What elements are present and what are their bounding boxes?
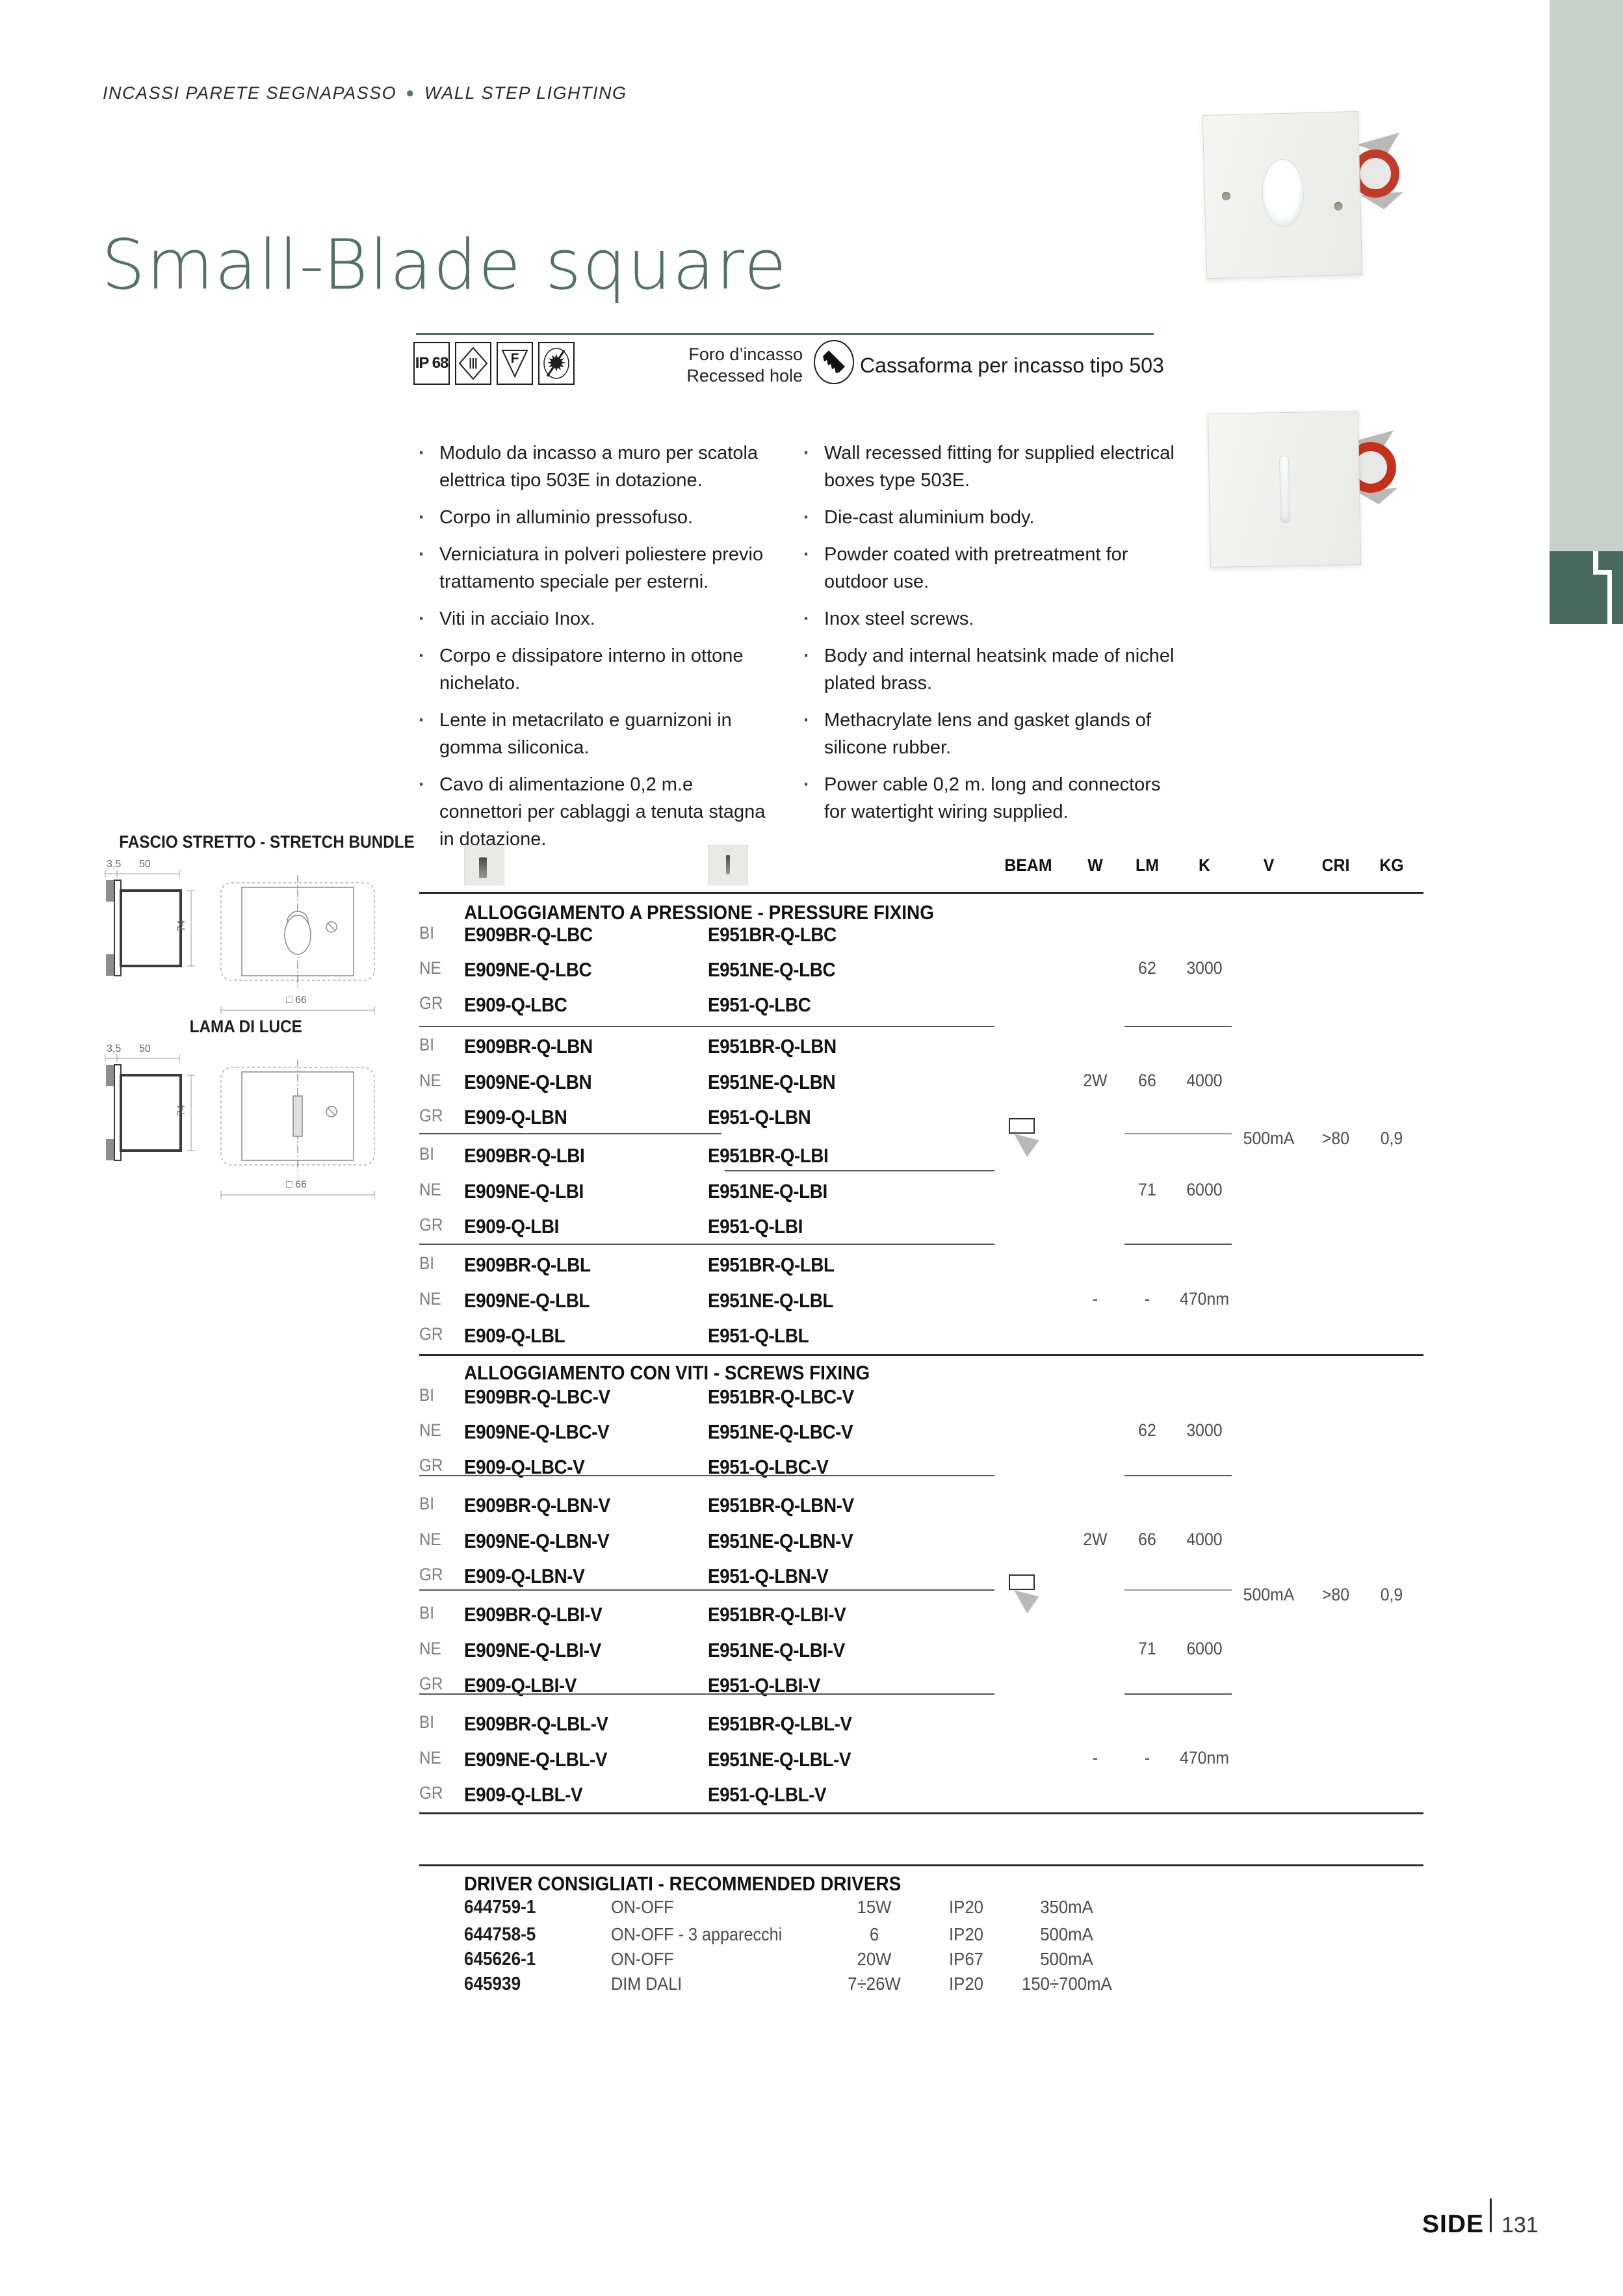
driver-watt: 7÷26W (842, 1974, 906, 1994)
driver-code: 644759-1 (464, 1897, 536, 1918)
feature-item: Die-cast aluminium body. (801, 504, 1178, 531)
finish-label: GR (419, 1106, 443, 1126)
separator-dot-icon: ● (396, 85, 424, 101)
product-code: E951-Q-LBN (708, 1106, 811, 1129)
table-row: BIE909BR-Q-LBIE951BR-Q-LBI (0, 1144, 1623, 1168)
table-row: NEE909NE-Q-LBIE951NE-Q-LBI716000 (0, 1180, 1623, 1203)
driver-type: DIM DALI (611, 1974, 682, 1994)
product-thumb-oval (464, 845, 504, 885)
table-row: BIE909BR-Q-LBCE951BR-Q-LBC (0, 923, 1623, 946)
product-code: E909BR-Q-LBI (464, 1144, 584, 1168)
product-code: E909BR-Q-LBL (464, 1253, 591, 1277)
sunburst-icon: ✹ (541, 345, 572, 382)
step-logo-icon (1550, 551, 1623, 624)
product-code: E951NE-Q-LBL (708, 1289, 833, 1312)
driver-code: 644758-5 (464, 1924, 536, 1946)
feature-item: Corpo e dissipatore interno in ottone ni… (416, 642, 770, 697)
f-symbol-badge: F (497, 342, 533, 385)
kelvin-value: 3000 (1171, 1420, 1237, 1441)
finish-label: NE (419, 1180, 441, 1200)
column-header-v: V (1236, 855, 1301, 876)
product-photo-oval (1198, 109, 1412, 291)
section-title-pressure-fixing: ALLOGGIAMENTO A PRESSIONE - PRESSURE FIX… (464, 901, 986, 924)
product-code: E951BR-Q-LBI (708, 1144, 828, 1168)
finish-label: NE (419, 1071, 441, 1091)
no-direct-sunlight-badge: ✹ (538, 342, 575, 385)
product-code: E909NE-Q-LBI (464, 1180, 584, 1203)
table-row: GRE909-Q-LBL-VE951-Q-LBL-V (0, 1783, 1623, 1807)
kelvin-value: 470nm (1171, 1748, 1237, 1768)
formwork-label: Cassaforma per incasso tipo 503 (860, 354, 1164, 378)
driver-type: ON-OFF - 3 apparecchi (611, 1924, 782, 1945)
feature-item: Methacrylate lens and gasket glands of s… (801, 707, 1178, 761)
driver-watt: 15W (842, 1897, 906, 1918)
table-row: BIE909BR-Q-LBLE951BR-Q-LBL (0, 1253, 1623, 1277)
table-row: NEE909NE-Q-LBNE951NE-Q-LBN2W664000 (0, 1071, 1623, 1094)
table-row: NEE909NE-Q-LBN-VE951NE-Q-LBN-V2W664000 (0, 1530, 1623, 1553)
finish-label: NE (419, 1748, 441, 1768)
driver-current: 150÷700mA (1022, 1974, 1111, 1994)
product-code: E909-Q-LBI (464, 1215, 559, 1238)
lumen-value: 71 (1121, 1639, 1173, 1659)
finish-label: GR (419, 1565, 443, 1585)
group-divider (1124, 1244, 1232, 1245)
product-code: E951NE-Q-LBI (708, 1180, 827, 1203)
category-en: WALL STEP LIGHTING (424, 83, 627, 103)
slot-lens (1279, 456, 1290, 523)
recessed-hole-it: Foro d’incasso (663, 344, 803, 365)
product-code: E951NE-Q-LBN-V (708, 1530, 853, 1553)
product-code: E951-Q-LBL (708, 1324, 809, 1348)
finish-label: BI (419, 1712, 434, 1732)
category-header: INCASSI PARETE SEGNAPASSO●WALL STEP LIGH… (103, 83, 627, 103)
finish-label: NE (419, 958, 441, 978)
product-code: E951BR-Q-LBN-V (708, 1494, 854, 1517)
finish-label: GR (419, 1674, 443, 1694)
product-code: E951BR-Q-LBL-V (708, 1712, 852, 1736)
finish-label: BI (419, 1603, 434, 1623)
kelvin-value: 3000 (1171, 958, 1237, 978)
column-header-k: K (1171, 855, 1237, 876)
footer-divider (1490, 2198, 1492, 2232)
group-divider (419, 1693, 994, 1695)
table-row: BIE909BR-Q-LBC-VE951BR-Q-LBC-V (0, 1385, 1623, 1409)
table-row: NEE909NE-Q-LBL-VE951NE-Q-LBL-V--470nm (0, 1748, 1623, 1771)
feature-item: Corpo in alluminio pressofuso. (416, 504, 770, 531)
finish-label: GR (419, 1215, 443, 1235)
finish-label: BI (419, 1385, 434, 1405)
table-row: GRE909-Q-LBNE951-Q-LBN (0, 1106, 1623, 1129)
side-color-band (1550, 0, 1623, 551)
section-title-screws-fixing: ALLOGGIAMENTO CON VITI - SCREWS FIXING (464, 1361, 915, 1385)
weight-value: 0,9 (1366, 1585, 1417, 1605)
finish-label: NE (419, 1639, 441, 1659)
finish-label: BI (419, 1494, 434, 1514)
features-english: Wall recessed fitting for supplied elect… (801, 439, 1178, 835)
product-code: E909NE-Q-LBL (464, 1289, 590, 1312)
column-header-cri: CRI (1310, 855, 1361, 876)
fixture-plate (1202, 111, 1363, 279)
table-row: BIE909BR-Q-LBL-VE951BR-Q-LBL-V (0, 1712, 1623, 1736)
product-code: E909BR-Q-LBC-V (464, 1385, 610, 1409)
lumen-value: - (1121, 1748, 1173, 1768)
product-code: E951NE-Q-LBN (708, 1071, 835, 1094)
finish-label: NE (419, 1420, 441, 1441)
feature-item: Lente in metacrilato e guarnizoni in gom… (416, 707, 770, 761)
watt-value: - (1069, 1289, 1123, 1309)
table-row: NEE909NE-Q-LBCE951NE-Q-LBC623000 (0, 958, 1623, 982)
driver-watt: 6 (842, 1924, 906, 1945)
lumen-value: 62 (1121, 958, 1173, 978)
drawing-title-light-blade: LAMA DI LUCE (103, 1017, 389, 1037)
cri-value: >80 (1310, 1585, 1361, 1605)
formwork-icon (812, 339, 855, 388)
footer-brand: SIDE (1422, 2210, 1484, 2239)
drivers-top-rule (419, 1864, 1423, 1866)
page-number: 131 (1501, 2213, 1539, 2238)
class-3-diamond-icon: Ⅲ (458, 345, 489, 382)
product-code: E909-Q-LBN (464, 1106, 567, 1129)
group-divider (419, 1026, 994, 1027)
finish-label: BI (419, 1253, 434, 1273)
product-code: E951-Q-LBL-V (708, 1783, 826, 1807)
finish-label: GR (419, 993, 443, 1013)
product-code: E909BR-Q-LBN (464, 1035, 593, 1058)
f-triangle-icon: F (499, 345, 530, 382)
table-row: NEE909NE-Q-LBC-VE951NE-Q-LBC-V623000 (0, 1420, 1623, 1444)
product-code: E909-Q-LBC (464, 993, 567, 1017)
product-photo-slot (1201, 404, 1409, 577)
lumen-value: 66 (1121, 1530, 1173, 1550)
table-row: NEE909NE-Q-LBI-VE951NE-Q-LBI-V716000 (0, 1639, 1623, 1662)
driver-type: ON-OFF (611, 1949, 674, 1970)
catalog-page: INCASSI PARETE SEGNAPASSO●WALL STEP LIGH… (0, 0, 1623, 2296)
feature-item: Verniciatura in polveri poliestere previ… (416, 541, 770, 595)
driver-row: 644759-1ON-OFF15WIP20350mA (0, 1897, 1623, 1920)
group-divider (419, 1244, 994, 1245)
product-code: E951-Q-LBC (708, 993, 811, 1017)
section-divider (419, 1354, 1423, 1356)
drawing-title-stretch-bundle: FASCIO STRETTO - STRETCH BUNDLE (103, 832, 389, 852)
driver-row: 644758-5ON-OFF - 3 apparecchi6IP20500mA (0, 1924, 1623, 1948)
beam-icon (1009, 1118, 1035, 1134)
product-code: E909NE-Q-LBI-V (464, 1639, 601, 1662)
table-row: NEE909NE-Q-LBLE951NE-Q-LBL--470nm (0, 1289, 1623, 1312)
driver-type: ON-OFF (611, 1897, 674, 1918)
kelvin-value: 4000 (1171, 1071, 1237, 1091)
watt-value: 2W (1069, 1071, 1123, 1091)
product-code: E951BR-Q-LBN (708, 1035, 837, 1058)
feature-item: Wall recessed fitting for supplied elect… (801, 439, 1178, 494)
svg-text:F: F (511, 351, 519, 366)
category-it: INCASSI PARETE SEGNAPASSO (103, 83, 396, 103)
table-bottom-rule (419, 1812, 1423, 1814)
features-italian: Modulo da incasso a muro per scatola ele… (416, 439, 770, 863)
driver-code: 645939 (464, 1974, 521, 1995)
driver-current: 500mA (1022, 1949, 1111, 1970)
group-divider (1124, 1693, 1232, 1695)
recessed-hole-labels: Foro d’incasso Recessed hole (663, 344, 803, 387)
feature-item: Inox steel screws. (801, 605, 1178, 633)
driver-current: 350mA (1022, 1897, 1111, 1918)
column-header-kg: KG (1366, 855, 1417, 876)
watt-value: - (1069, 1748, 1123, 1768)
product-code: E909-Q-LBL-V (464, 1783, 582, 1807)
recessed-hole-en: Recessed hole (663, 365, 803, 387)
finish-label: BI (419, 923, 434, 943)
feature-item: Cavo di alimentazione 0,2 m.e connettori… (416, 771, 770, 853)
driver-watt: 20W (842, 1949, 906, 1970)
driver-row: 645939DIM DALI7÷26WIP20150÷700mA (0, 1974, 1623, 1997)
product-code: E951NE-Q-LBC-V (708, 1420, 853, 1444)
finish-label: NE (419, 1530, 441, 1550)
table-row: BIE909BR-Q-LBI-VE951BR-Q-LBI-V (0, 1603, 1623, 1626)
finish-label: NE (419, 1289, 441, 1309)
svg-text:3,5: 3,5 (107, 859, 121, 870)
driver-current: 500mA (1022, 1924, 1111, 1945)
column-header-w: W (1069, 855, 1123, 876)
product-code: E909BR-Q-LBC (464, 923, 593, 946)
driver-ip: IP20 (949, 1924, 983, 1945)
brand-logo (1550, 551, 1623, 624)
product-code: E909NE-Q-LBN-V (464, 1530, 609, 1553)
feature-item: Viti in acciaio Inox. (416, 605, 770, 633)
finish-label: GR (419, 1455, 443, 1476)
product-code: E951NE-Q-LBL-V (708, 1748, 851, 1771)
table-row: GRE909-Q-LBLE951-Q-LBL (0, 1324, 1623, 1348)
table-row: GRE909-Q-LBCE951-Q-LBC (0, 993, 1623, 1017)
finish-label: GR (419, 1783, 443, 1803)
table-header-rule (419, 892, 1423, 894)
product-code: E909NE-Q-LBC (464, 958, 591, 982)
fixture-plate (1208, 411, 1361, 567)
product-code: E909NE-Q-LBC-V (464, 1420, 609, 1444)
page-title: Small-Blade square (101, 225, 788, 305)
group-divider (419, 1475, 994, 1476)
feature-item: Powder coated with pretreatment for outd… (801, 541, 1178, 595)
svg-text:Ⅲ: Ⅲ (468, 356, 478, 372)
ip-rating-badge: IP 68 (413, 342, 450, 385)
lumen-value: 66 (1121, 1071, 1173, 1091)
kelvin-value: 4000 (1171, 1530, 1237, 1550)
driver-ip: IP20 (949, 1897, 983, 1918)
product-code: E909-Q-LBL (464, 1324, 565, 1348)
group-divider (1124, 1026, 1232, 1027)
screw-icon (1222, 192, 1230, 200)
beam-icon (1009, 1574, 1035, 1590)
group-divider (725, 1170, 994, 1171)
finish-label: BI (419, 1144, 434, 1164)
product-code: E909NE-Q-LBL-V (464, 1748, 607, 1771)
finish-label: BI (419, 1035, 434, 1055)
svg-text:50: 50 (139, 859, 151, 870)
product-thumb-slot (708, 845, 748, 885)
driver-code: 645626-1 (464, 1949, 536, 1970)
table-row: GRE909-Q-LBIE951-Q-LBI (0, 1215, 1623, 1238)
ip-rating-label: IP 68 (415, 354, 448, 372)
lumen-value: 71 (1121, 1180, 1173, 1200)
lumen-value: 62 (1121, 1420, 1173, 1441)
lumen-value: - (1121, 1289, 1173, 1309)
driver-ip: IP20 (949, 1974, 983, 1994)
product-code: E909BR-Q-LBI-V (464, 1603, 602, 1626)
product-code: E951NE-Q-LBC (708, 958, 835, 982)
product-code: E951BR-Q-LBI-V (708, 1603, 846, 1626)
table-row: BIE909BR-Q-LBNE951BR-Q-LBN (0, 1035, 1623, 1058)
driver-row: 645626-1ON-OFF20WIP67500mA (0, 1949, 1623, 1972)
voltage-value: 500mA (1236, 1585, 1301, 1605)
watt-value: 2W (1069, 1530, 1123, 1550)
product-code: E951BR-Q-LBC-V (708, 1385, 854, 1409)
kelvin-value: 6000 (1171, 1180, 1237, 1200)
feature-item: Body and internal heatsink made of niche… (801, 642, 1178, 697)
product-code: E951BR-Q-LBL (708, 1253, 835, 1277)
feature-item: Modulo da incasso a muro per scatola ele… (416, 439, 770, 494)
finish-label: GR (419, 1324, 443, 1344)
driver-ip: IP67 (949, 1949, 983, 1970)
column-header-lm: LM (1121, 855, 1173, 876)
product-code: E909BR-Q-LBL-V (464, 1712, 608, 1736)
accent-rule (416, 333, 1154, 335)
class-3-badge: Ⅲ (455, 342, 491, 385)
column-header-beam: BEAM (1001, 855, 1056, 876)
product-code: E951NE-Q-LBI-V (708, 1639, 845, 1662)
product-code: E951BR-Q-LBC (708, 923, 837, 946)
group-divider (1124, 1475, 1232, 1476)
kelvin-value: 470nm (1171, 1289, 1237, 1309)
product-code: E909NE-Q-LBN (464, 1071, 591, 1094)
feature-item: Power cable 0,2 m. long and connectors f… (801, 771, 1178, 826)
product-code: E951-Q-LBI (708, 1215, 803, 1238)
drivers-title: DRIVER CONSIGLIATI - RECOMMENDED DRIVERS (464, 1872, 950, 1896)
product-code: E909BR-Q-LBN-V (464, 1494, 610, 1517)
kelvin-value: 6000 (1171, 1639, 1237, 1659)
screw-icon (1334, 202, 1342, 211)
oval-lens (1262, 159, 1305, 228)
table-row: BIE909BR-Q-LBN-VE951BR-Q-LBN-V (0, 1494, 1623, 1517)
